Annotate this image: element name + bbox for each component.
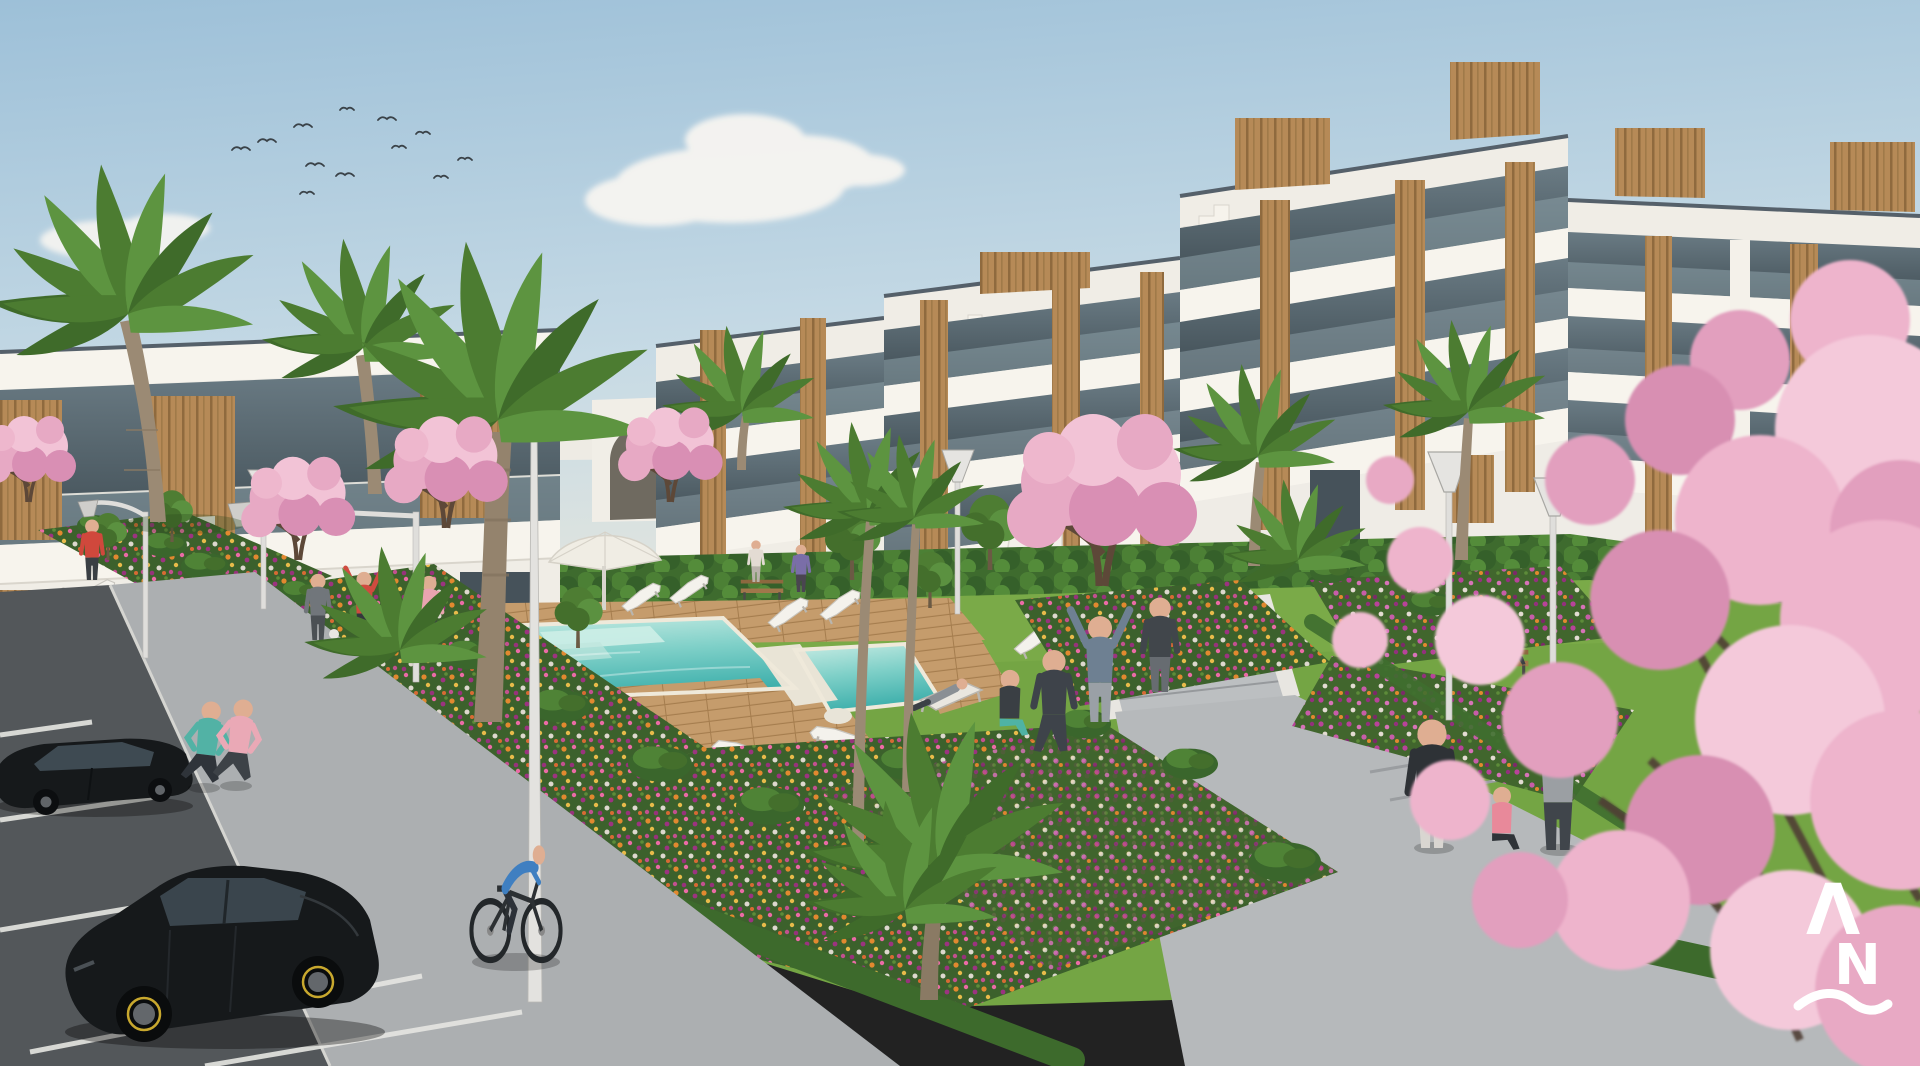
rooftop-timber-volume (1615, 128, 1705, 198)
rooftop-timber-volume (1830, 142, 1915, 212)
car-sedan (0, 739, 193, 817)
rooftop-timber-volume (1235, 118, 1330, 190)
ball (329, 629, 339, 639)
architectural-render-scene: Λ N (0, 0, 1920, 1066)
rooftop-timber-volume (1450, 62, 1540, 140)
watermark-letter-bottom: N (1834, 933, 1881, 998)
render-screenshot: Λ N (0, 0, 1920, 1066)
lounger-cushion (824, 708, 852, 724)
